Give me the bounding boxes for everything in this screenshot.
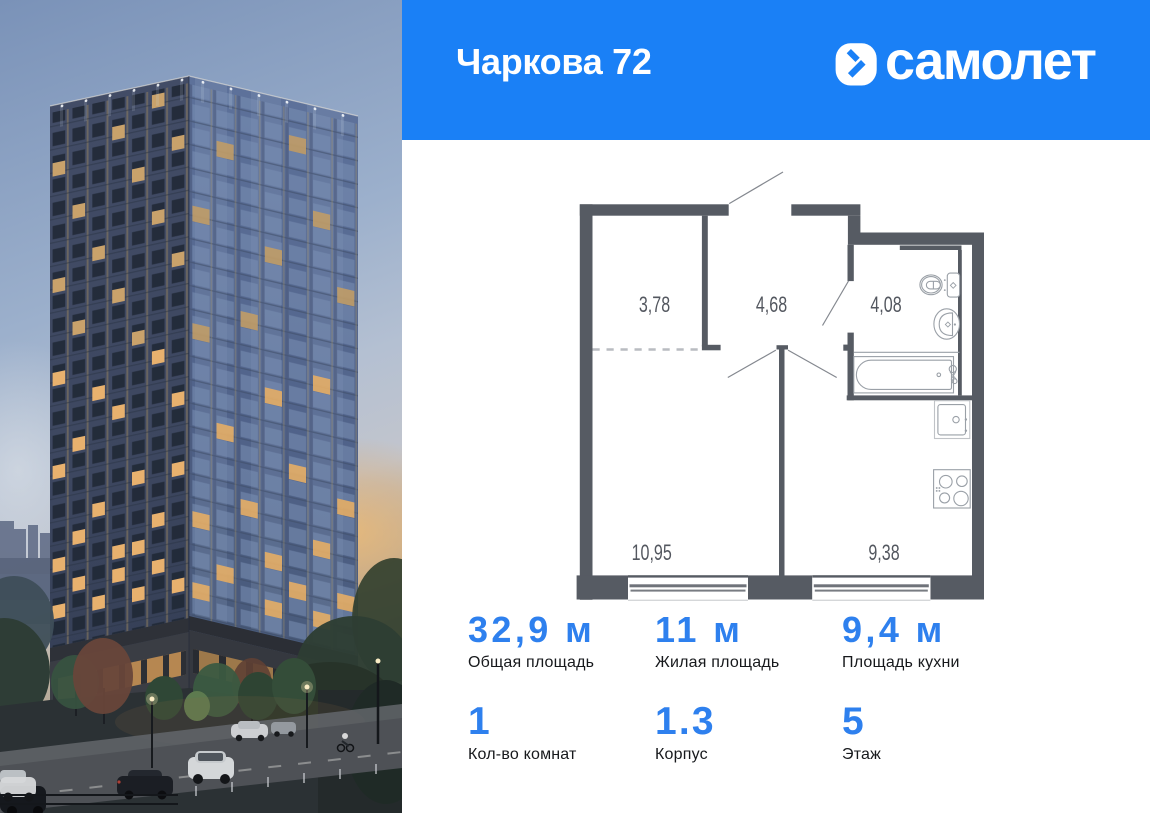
svg-text:самолет: самолет — [885, 36, 1096, 91]
svg-text:4,08: 4,08 — [870, 294, 901, 318]
svg-text:3,78: 3,78 — [639, 294, 670, 318]
svg-text:9,38: 9,38 — [868, 542, 899, 566]
svg-text:10,95: 10,95 — [632, 542, 672, 566]
svg-text:4,68: 4,68 — [756, 294, 787, 318]
